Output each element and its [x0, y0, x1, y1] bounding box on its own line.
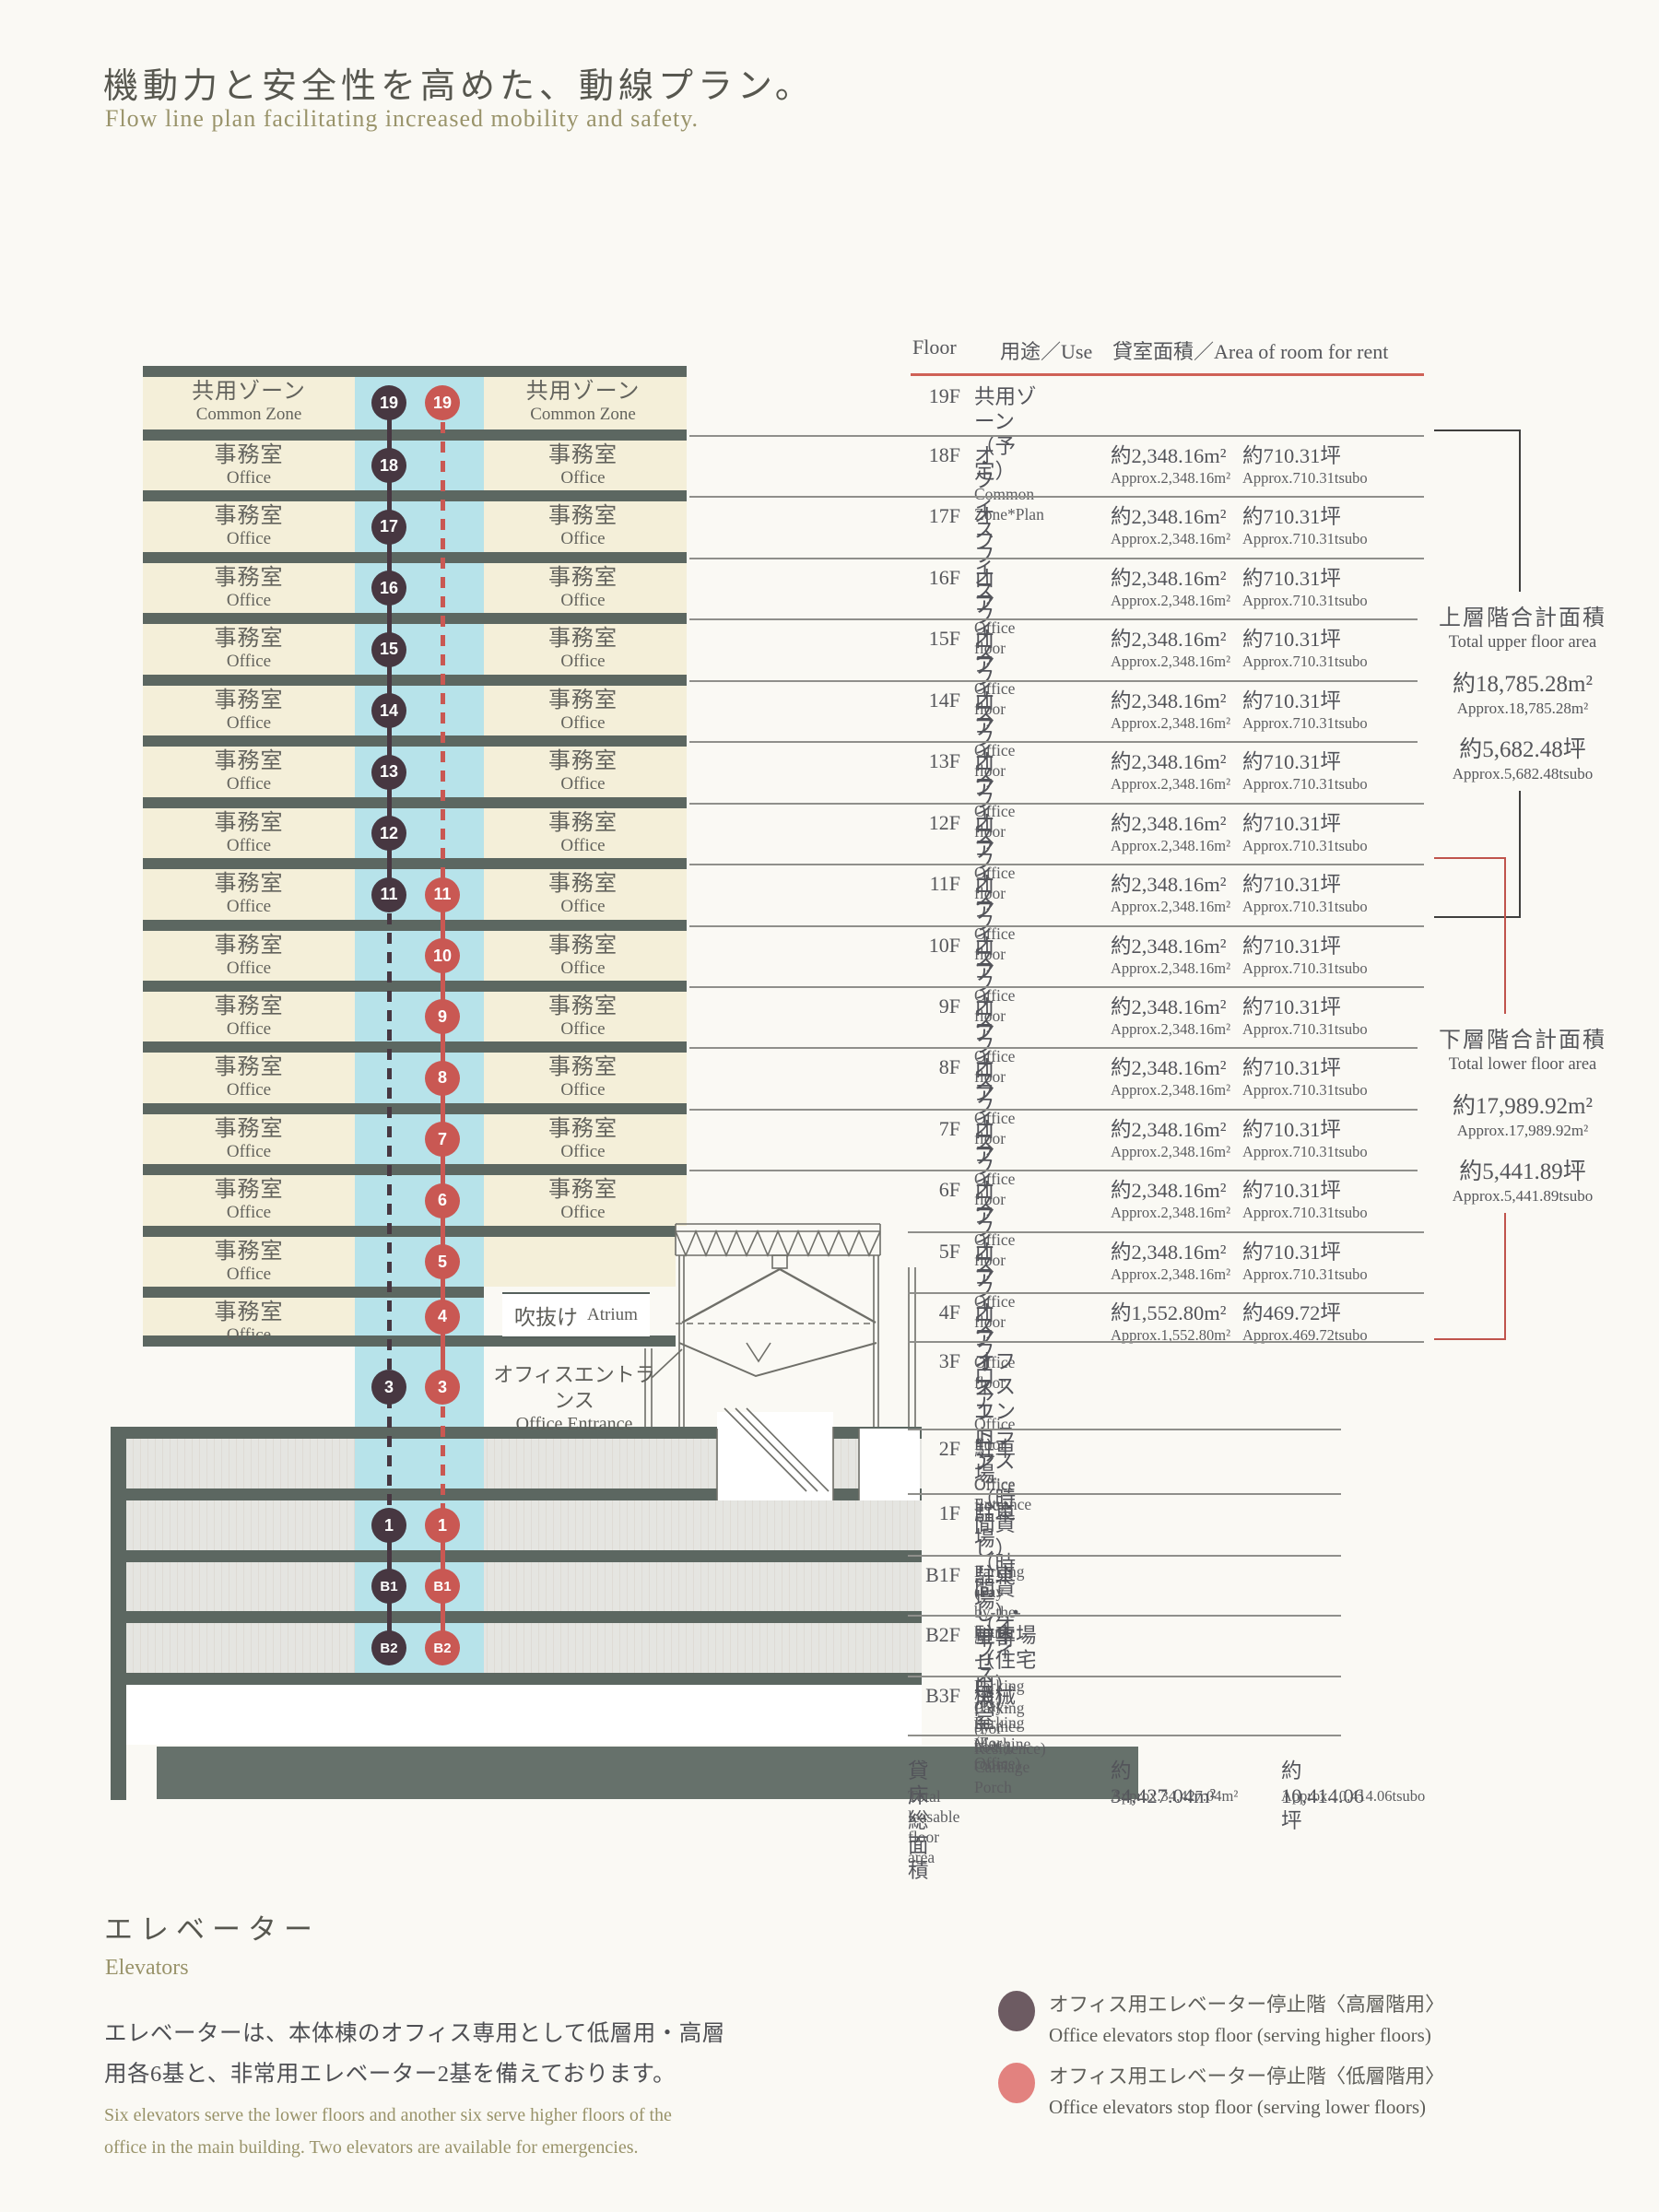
elevator-stop-high-12: 12 [371, 816, 406, 851]
cell-area-tsubo: 約710.31坪Approx.710.31tsubo [1242, 1240, 1368, 1285]
low-elevator-line-dashed [441, 403, 445, 894]
floor-left-label-14f: 事務室Office [147, 688, 350, 734]
elevator-stop-high-11: 11 [371, 877, 406, 912]
row-divider [689, 558, 1424, 559]
upper-summary-tsubo-en: Approx.5,682.48tsubo [1418, 765, 1628, 783]
floor-slab [143, 920, 687, 931]
cell-area-m2: 約2,348.16m²Approx.2,348.16m² [1111, 443, 1230, 488]
cell-area-tsubo: 約469.72坪Approx.469.72tsubo [1242, 1300, 1368, 1346]
cell-area-m2: 約2,348.16m²Approx.2,348.16m² [1111, 994, 1230, 1040]
cell-area-m2: 約2,348.16m²Approx.2,348.16m² [1111, 1178, 1230, 1223]
cell-area-m2: 約2,348.16m²Approx.2,348.16m² [1111, 566, 1230, 611]
elevator-stop-low-4: 4 [425, 1300, 460, 1335]
row-divider [908, 1735, 1341, 1736]
lower-summary-en: Total lower floor area [1418, 1055, 1628, 1075]
cell-area-tsubo: 約710.31坪Approx.710.31tsubo [1242, 504, 1368, 549]
elevator-stop-low-19: 19 [425, 385, 460, 420]
row-divider [689, 1170, 1424, 1171]
floor-left-label-17f: 事務室Office [147, 504, 350, 549]
floor-left-label-13f: 事務室Office [147, 749, 350, 794]
upper-summary-jp: 上層階合計面積 [1418, 599, 1628, 631]
cell-area-m2: 約2,348.16m²Approx.2,348.16m² [1111, 627, 1230, 672]
elevator-stop-high-13: 13 [371, 755, 406, 790]
atrium-label-en: Atrium [587, 1305, 638, 1325]
row-divider [689, 803, 1424, 805]
floor-left-label-12f: 事務室Office [147, 811, 350, 856]
floor-left-label-4f: 事務室Office [147, 1300, 350, 1346]
cell-floor: B3F [908, 1684, 960, 1708]
lower-summary-m2-en: Approx.17,989.92m² [1418, 1122, 1628, 1140]
row-divider [689, 925, 1424, 927]
cell-floor: 2F [908, 1437, 960, 1461]
floor-slab [143, 1164, 687, 1175]
cell-floor: 10F [908, 934, 960, 958]
upper-summary-m2-en: Approx.18,785.28m² [1418, 700, 1628, 718]
cell-floor: 11F [908, 872, 960, 896]
table-header-floor: Floor [912, 335, 957, 359]
parking-slab [126, 1611, 922, 1623]
elevator-stop-low-b1: B1 [425, 1569, 460, 1604]
cell-area-tsubo: 約710.31坪Approx.710.31tsubo [1242, 994, 1368, 1040]
cell-area-m2: 約2,348.16m²Approx.2,348.16m² [1111, 872, 1230, 917]
floor-slab [143, 1287, 484, 1298]
floor-left-label-5f: 事務室Office [147, 1240, 350, 1285]
cell-area-tsubo: 約710.31坪Approx.710.31tsubo [1242, 1055, 1368, 1100]
elevator-stop-high-19: 19 [371, 385, 406, 420]
row-divider [689, 1109, 1424, 1111]
elevator-stop-low-b2: B2 [425, 1630, 460, 1665]
floor-right-label-13f: 事務室Office [484, 749, 682, 794]
table-header-use: 用途／Use [1000, 335, 1092, 365]
lower-bracket-top [1434, 857, 1506, 859]
cell-floor: 13F [908, 749, 960, 773]
cell-area-m2: 約2,348.16m²Approx.2,348.16m² [1111, 1117, 1230, 1162]
upper-summary-m2-jp: 約18,785.28m² [1418, 665, 1628, 699]
floor-left-label-11f: 事務室Office [147, 872, 350, 917]
row-divider [908, 1555, 1341, 1557]
lower-summary-tsubo-en: Approx.5,441.89tsubo [1418, 1187, 1628, 1206]
floor-left-label-16f: 事務室Office [147, 566, 350, 611]
row-divider [689, 618, 1424, 620]
cell-area-m2: 約2,348.16m²Approx.2,348.16m² [1111, 1055, 1230, 1100]
table-header-rule [911, 373, 1424, 376]
legend-high-en: Office elevators stop floor (serving hig… [1049, 2021, 1620, 2049]
floor-right-label-6f: 事務室Office [484, 1178, 682, 1223]
page-subtitle: Flow line plan facilitating increased mo… [105, 105, 699, 133]
row-divider [689, 864, 1424, 865]
cell-floor: 3F [908, 1349, 960, 1373]
cell-area-m2: 約1,552.80m²Approx.1,552.80m² [1111, 1300, 1230, 1346]
parking-band [126, 1623, 922, 1673]
elevator-stop-low-10: 10 [425, 938, 460, 973]
floor-right-label-15f: 事務室Office [484, 627, 682, 672]
floor-slab [143, 1103, 687, 1114]
low-elevator-dot [998, 2063, 1035, 2103]
elevator-stop-low-3: 3 [425, 1370, 460, 1405]
elevator-stop-low-6: 6 [425, 1183, 460, 1218]
upper-bracket-top [1434, 429, 1521, 431]
floor-right-label-17f: 事務室Office [484, 504, 682, 549]
elevators-body-en: Six elevators serve the lower floors and… [104, 2100, 672, 2164]
floor-slab [143, 1041, 687, 1053]
elevator-stop-high-17: 17 [371, 510, 406, 545]
cell-floor: 4F [908, 1300, 960, 1324]
upper-bracket-bottom [1434, 916, 1521, 918]
floor-slab [143, 613, 687, 624]
cell-area-tsubo: 約710.31坪Approx.710.31tsubo [1242, 627, 1368, 672]
row-divider [689, 496, 1424, 498]
cell-floor: 15F [908, 627, 960, 651]
floor-right-label-12f: 事務室Office [484, 811, 682, 856]
office-entrance-en: Office Entrance [487, 1413, 662, 1436]
cell-use: 機械室Machine room [974, 1684, 1030, 1774]
lower-bracket-bottom [1434, 1338, 1506, 1340]
cell-floor: 9F [908, 994, 960, 1018]
office-entrance-jp: オフィスエントランス [487, 1362, 662, 1413]
lower-summary-jp: 下層階合計面積 [1418, 1021, 1628, 1053]
cell-floor: 17F [908, 504, 960, 528]
floor-right-label-10f: 事務室Office [484, 934, 682, 979]
floor-right-label-19f: 共用ゾーンCommon Zone [484, 380, 682, 425]
total-tsubo-en: Approx.10,414.06tsubo [1281, 1786, 1425, 1806]
floor-right-label-7f: 事務室Office [484, 1117, 682, 1162]
elevator-stop-high-b2: B2 [371, 1630, 406, 1665]
cell-area-m2: 約2,348.16m²Approx.2,348.16m² [1111, 811, 1230, 856]
legend-low-jp: オフィス用エレベーター停止階〈低層階用〉 [1049, 2063, 1620, 2090]
cell-area-tsubo: 約710.31坪Approx.710.31tsubo [1242, 811, 1368, 856]
elevators-heading-en: Elevators [105, 1956, 189, 1981]
parking-band [126, 1562, 922, 1611]
elevator-stop-high-15: 15 [371, 632, 406, 667]
legend-high-jp: オフィス用エレベーター停止階〈高層階用〉 [1049, 1991, 1620, 2018]
floor-slab [143, 429, 687, 441]
cell-floor: 12F [908, 811, 960, 835]
total-m2-en: Approx.34,427.04m² [1111, 1786, 1238, 1806]
cell-floor: B1F [908, 1563, 960, 1587]
floor-slab [143, 552, 687, 563]
basement-left-wall [111, 1427, 126, 1800]
cell-floor: 18F [908, 443, 960, 467]
upper-floor-summary: 上層階合計面積 Total upper floor area 約18,785.2… [1418, 592, 1628, 791]
cell-area-tsubo: 約710.31坪Approx.710.31tsubo [1242, 443, 1368, 488]
elevator-stop-high-3: 3 [371, 1370, 406, 1405]
cell-area-m2: 約2,348.16m²Approx.2,348.16m² [1111, 688, 1230, 734]
row-divider [689, 986, 1424, 988]
lower-summary-m2-jp: 約17,989.92m² [1418, 1088, 1628, 1121]
row-divider [689, 680, 1424, 682]
floor-left-label-15f: 事務室Office [147, 627, 350, 672]
cell-floor: 6F [908, 1178, 960, 1202]
high-elevator-dot [998, 1991, 1035, 2031]
cell-area-tsubo: 約710.31坪Approx.710.31tsubo [1242, 872, 1368, 917]
floor-right-label-18f: 事務室Office [484, 443, 682, 488]
table-header-area: 貸室面積／Area of room for rent [1112, 335, 1388, 365]
floor-left-label-19f: 共用ゾーンCommon Zone [147, 380, 350, 425]
legend-low-en: Office elevators stop floor (serving low… [1049, 2093, 1620, 2121]
floor-left-label-18f: 事務室Office [147, 443, 350, 488]
floor-left-label-9f: 事務室Office [147, 994, 350, 1040]
elevator-stop-low-1: 1 [425, 1508, 460, 1543]
row-divider [689, 435, 1424, 437]
row-divider [689, 741, 1424, 743]
floor-slab [143, 858, 687, 869]
row-divider [908, 1341, 1424, 1343]
row-divider [908, 1292, 1424, 1294]
floor-left-label-7f: 事務室Office [147, 1117, 350, 1162]
cell-area-tsubo: 約710.31坪Approx.710.31tsubo [1242, 688, 1368, 734]
cell-area-tsubo: 約710.31坪Approx.710.31tsubo [1242, 934, 1368, 979]
elevator-stop-high-18: 18 [371, 448, 406, 483]
cell-floor: 14F [908, 688, 960, 712]
parking-slab [126, 1550, 922, 1562]
floor-left-label-10f: 事務室Office [147, 934, 350, 979]
floor-right-label-8f: 事務室Office [484, 1055, 682, 1100]
elevator-stop-low-8: 8 [425, 1061, 460, 1096]
elevator-stop-high-1: 1 [371, 1508, 406, 1543]
floor-right-label-11f: 事務室Office [484, 872, 682, 917]
floor-slab [143, 981, 687, 992]
cell-area-m2: 約2,348.16m²Approx.2,348.16m² [1111, 1240, 1230, 1285]
floor-slab [143, 735, 687, 747]
atrium-structure-drawing [553, 1180, 931, 1521]
elevator-stop-low-11: 11 [425, 877, 460, 912]
floor-right-label-14f: 事務室Office [484, 688, 682, 734]
cell-area-m2: 約2,348.16m²Approx.2,348.16m² [1111, 504, 1230, 549]
cell-area-tsubo: 約710.31坪Approx.710.31tsubo [1242, 1178, 1368, 1223]
cell-area-tsubo: 約710.31坪Approx.710.31tsubo [1242, 1117, 1368, 1162]
floor-left-label-6f: 事務室Office [147, 1178, 350, 1223]
row-divider [689, 1047, 1424, 1049]
elevator-stop-high-b1: B1 [371, 1569, 406, 1604]
elevator-stop-low-5: 5 [425, 1244, 460, 1279]
upper-summary-tsubo-jp: 約5,682.48坪 [1418, 731, 1628, 764]
office-entrance-label: オフィスエントランス Office Entrance [487, 1362, 662, 1436]
cell-area-tsubo: 約710.31坪Approx.710.31tsubo [1242, 749, 1368, 794]
floor-slab [143, 675, 687, 686]
row-divider [908, 1615, 1341, 1617]
atrium-label-jp: 吹抜け [514, 1300, 578, 1331]
parking-slab [126, 1673, 922, 1685]
high-elevator-line-dashed [387, 894, 392, 1525]
cell-area-tsubo: 約710.31坪Approx.710.31tsubo [1242, 566, 1368, 611]
cell-area-m2: 約2,348.16m²Approx.2,348.16m² [1111, 749, 1230, 794]
b3-machine-room-space [126, 1685, 922, 1745]
lower-summary-tsubo-jp: 約5,441.89坪 [1418, 1153, 1628, 1186]
cell-floor: 7F [908, 1117, 960, 1141]
row-divider [908, 1429, 1341, 1430]
elevators-heading-jp: エレベーター [104, 1906, 320, 1947]
cell-area-m2: 約2,348.16m²Approx.2,348.16m² [1111, 934, 1230, 979]
atrium-label: 吹抜け Atrium [502, 1292, 650, 1338]
floor-left-label-8f: 事務室Office [147, 1055, 350, 1100]
roof-slab [143, 366, 687, 377]
cell-floor: B2F [908, 1623, 960, 1647]
row-divider [908, 1493, 1341, 1495]
elevator-stop-high-14: 14 [371, 693, 406, 728]
floor-right-label-9f: 事務室Office [484, 994, 682, 1040]
elevator-stop-low-9: 9 [425, 999, 460, 1034]
cell-floor: 16F [908, 566, 960, 590]
low-elevator-line-dashed [441, 1387, 445, 1525]
floor-slab [143, 490, 687, 501]
elevators-body-jp: エレベーターは、本体棟のオフィス専用として低層用・高層用各6基と、非常用エレベー… [104, 2014, 725, 2095]
row-divider [908, 1676, 1341, 1677]
elevator-stop-high-16: 16 [371, 571, 406, 606]
floor-slab [143, 797, 687, 808]
lower-floor-summary: 下層階合計面積 Total lower floor area 約17,989.9… [1418, 1014, 1628, 1213]
row-divider [908, 1231, 1424, 1233]
page-title: 機動力と安全性を高めた、動線プラン。 [103, 57, 815, 108]
floor-right-label-16f: 事務室Office [484, 566, 682, 611]
cell-floor: 19F [908, 384, 960, 408]
total-label-en: Total leasable floor area [908, 1786, 959, 1867]
cell-floor: 5F [908, 1240, 960, 1264]
elevator-stop-low-7: 7 [425, 1122, 460, 1157]
upper-summary-en: Total upper floor area [1418, 633, 1628, 653]
cell-floor: 8F [908, 1055, 960, 1079]
cell-floor: 1F [908, 1501, 960, 1525]
